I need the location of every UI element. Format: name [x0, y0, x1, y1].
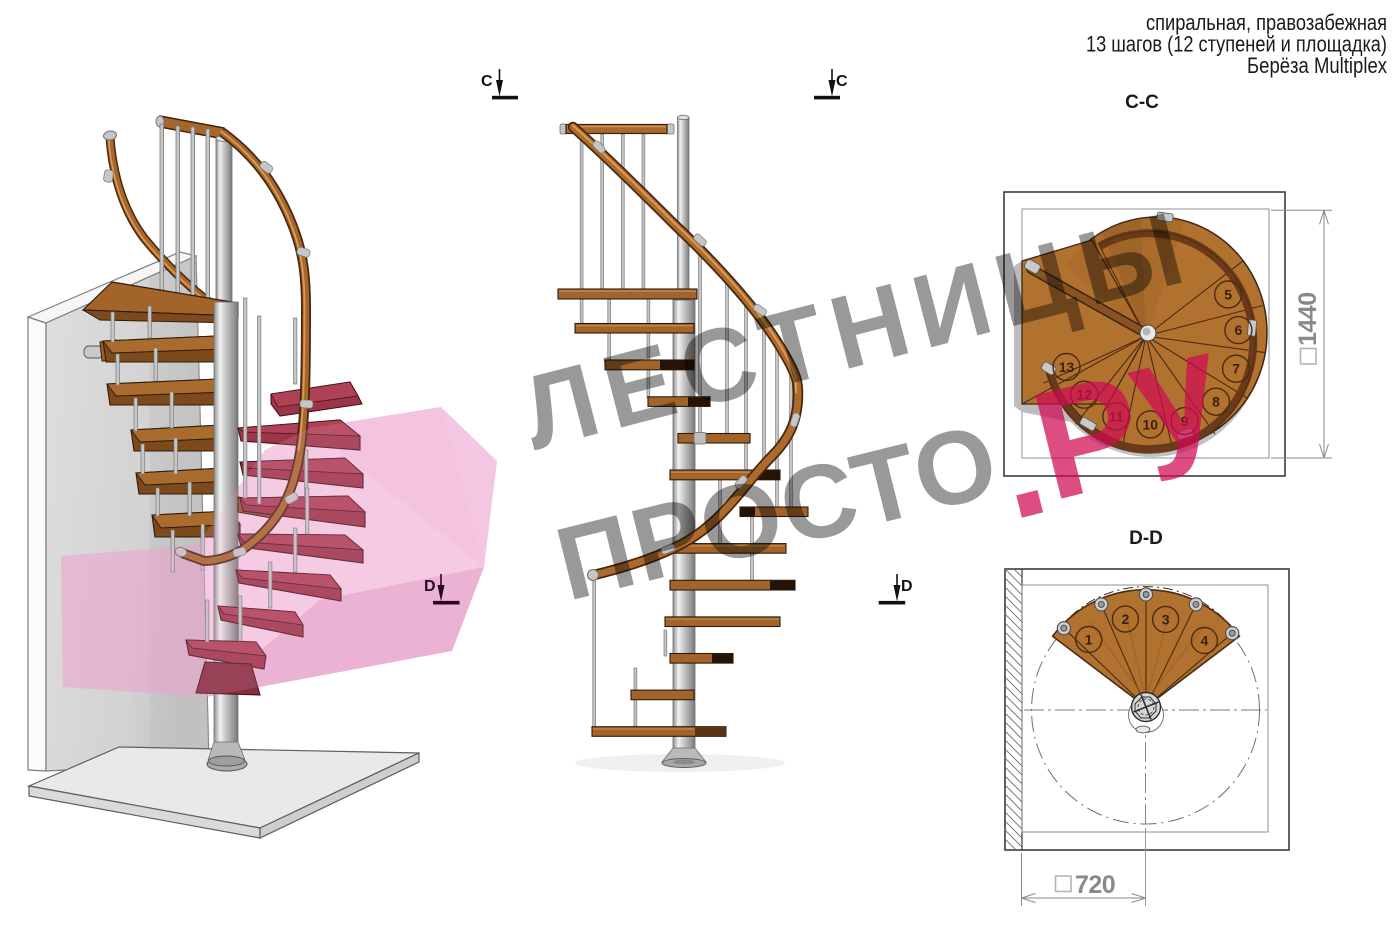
svg-text:3: 3	[1162, 611, 1170, 627]
svg-text:7: 7	[1232, 361, 1240, 377]
svg-text:720: 720	[1075, 871, 1115, 899]
svg-text:2: 2	[1122, 611, 1130, 627]
svg-text:D-D: D-D	[1129, 528, 1163, 549]
svg-text:D: D	[424, 578, 436, 595]
svg-text:C: C	[836, 73, 848, 90]
svg-text:5: 5	[1224, 287, 1232, 303]
svg-text:C-C: C-C	[1125, 92, 1159, 113]
svg-text:1: 1	[1085, 632, 1093, 648]
svg-text:6: 6	[1235, 322, 1243, 338]
svg-text:Берёза Multiplex: Берёза Multiplex	[1247, 53, 1387, 78]
svg-text:D: D	[901, 578, 913, 595]
svg-text:C: C	[481, 73, 493, 90]
svg-text:4: 4	[1201, 633, 1209, 649]
svg-text:1440: 1440	[1294, 292, 1322, 346]
